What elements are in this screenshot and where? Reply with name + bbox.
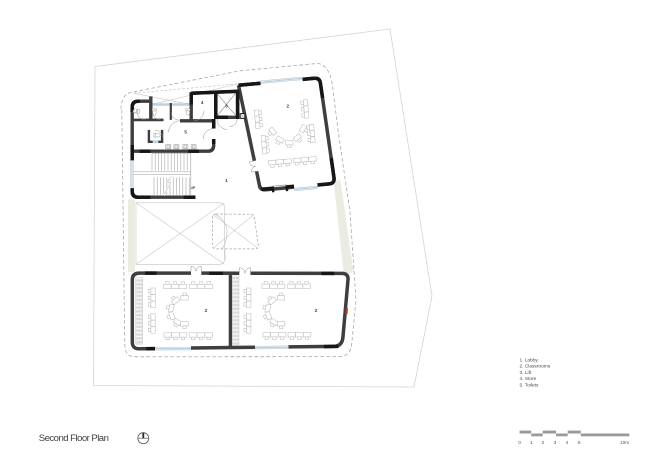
svg-text:Second Floor Plan: Second Floor Plan	[39, 433, 109, 444]
svg-text:5. Toilets: 5. Toilets	[520, 382, 539, 388]
svg-text:1: 1	[225, 178, 228, 183]
svg-text:2: 2	[542, 440, 545, 446]
svg-text:1. Lobby: 1. Lobby	[520, 358, 539, 364]
svg-text:1: 1	[530, 440, 533, 446]
svg-text:3: 3	[225, 104, 228, 109]
svg-text:3: 3	[554, 440, 557, 446]
svg-text:2: 2	[286, 104, 289, 110]
svg-text:5: 5	[578, 440, 581, 446]
svg-text:0: 0	[518, 440, 521, 446]
svg-text:10m: 10m	[620, 440, 629, 446]
svg-text:2. Classrooms: 2. Classrooms	[520, 364, 551, 370]
svg-text:5: 5	[184, 130, 187, 135]
svg-text:2: 2	[315, 308, 318, 314]
svg-text:2: 2	[205, 308, 208, 314]
svg-text:4: 4	[566, 440, 569, 446]
svg-text:4: 4	[201, 100, 204, 105]
svg-text:4. Store: 4. Store	[520, 376, 537, 382]
svg-text:UP: UP	[191, 186, 196, 190]
svg-text:3. Lift: 3. Lift	[520, 370, 532, 376]
